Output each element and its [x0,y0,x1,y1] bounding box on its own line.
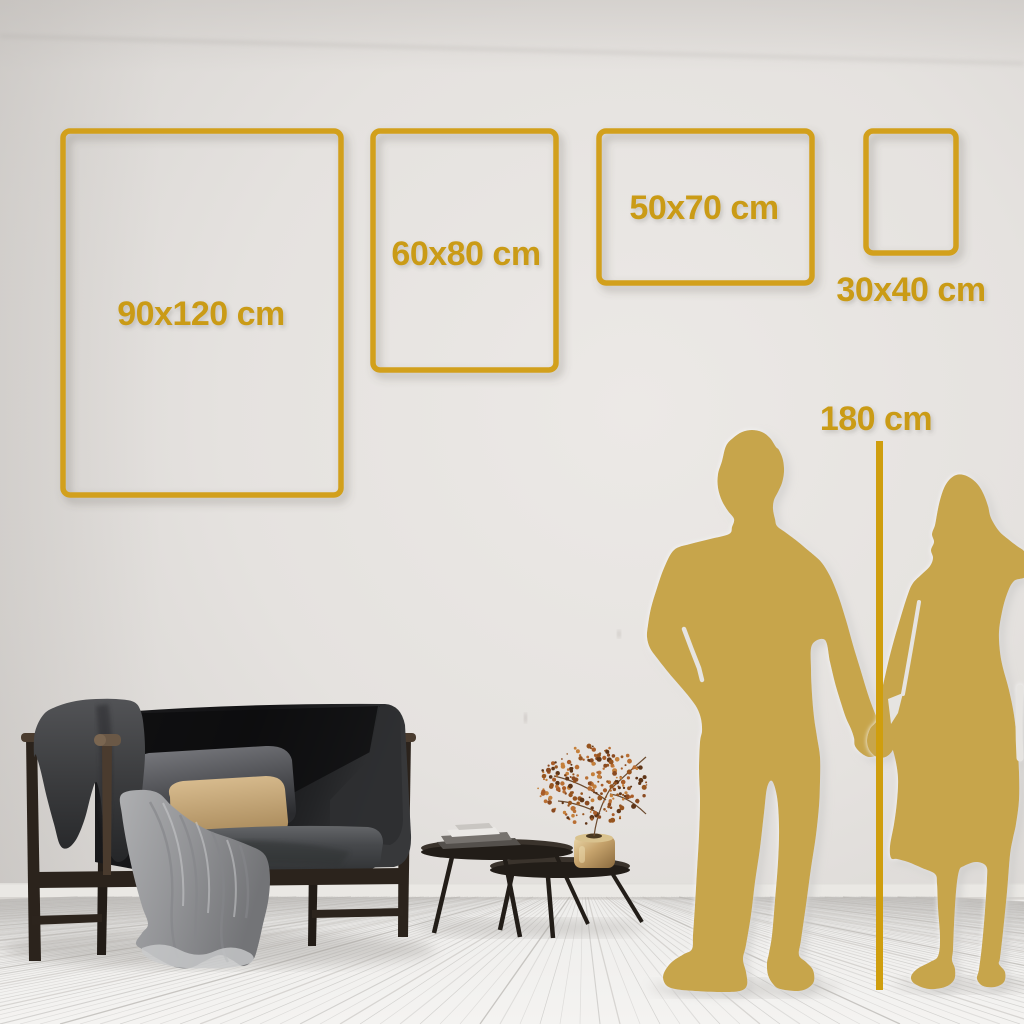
svg-text:60x80 cm: 60x80 cm [391,235,540,273]
svg-text:90x120 cm: 90x120 cm [117,295,285,333]
svg-text:180 cm: 180 cm [820,400,932,438]
svg-text:50x70 cm: 50x70 cm [629,189,778,227]
svg-text:30x40 cm: 30x40 cm [836,271,985,309]
